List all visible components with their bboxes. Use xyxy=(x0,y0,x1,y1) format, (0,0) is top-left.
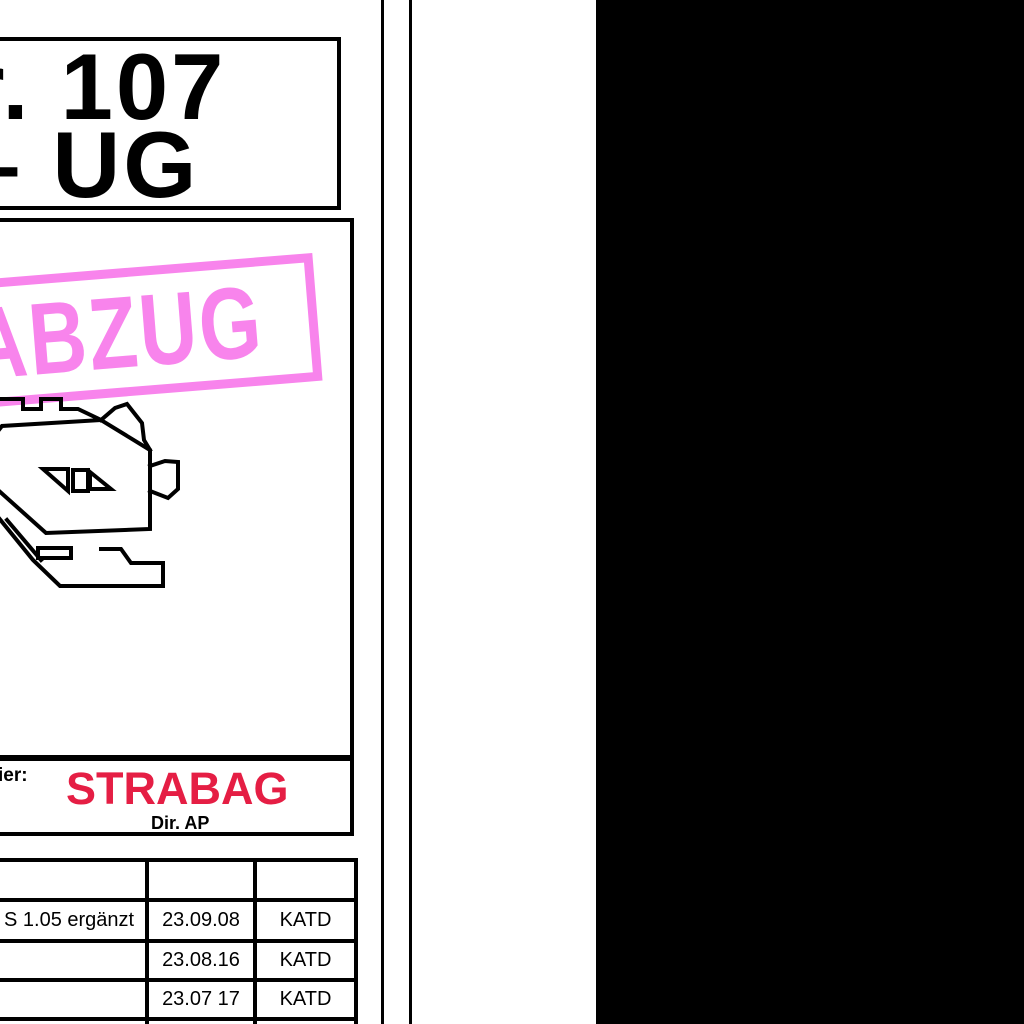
table-cell: 23.07 17 xyxy=(149,982,253,1017)
table-cell: KATD xyxy=(257,982,354,1017)
plan-sheet: r. 107 – UG ABZUG ier: STRABAG Dir. AP S… xyxy=(0,0,1024,1024)
frame-line-outer xyxy=(409,0,412,1024)
table-cell: KATD xyxy=(257,902,354,939)
publisher-box: ier: STRABAG Dir. AP xyxy=(0,757,354,836)
interior-rectangle xyxy=(73,470,88,491)
lower-wing-slot xyxy=(38,548,71,558)
roof-edge-line xyxy=(0,399,101,420)
building-side-tab xyxy=(150,461,178,498)
table-cell: KATD xyxy=(257,943,354,978)
table-cell xyxy=(0,982,145,1017)
black-masked-region xyxy=(596,0,1024,1024)
strabag-logo: STRABAG xyxy=(66,765,289,813)
building-corner-band xyxy=(101,404,150,450)
interior-triangle-right xyxy=(90,472,111,489)
abzug-stamp-text: ABZUG xyxy=(0,271,267,396)
title-box: r. 107 – UG xyxy=(0,37,341,210)
table-cell xyxy=(0,862,145,898)
frame-line-inner xyxy=(381,0,384,1024)
table-cell xyxy=(0,943,145,978)
site-plan-drawing xyxy=(0,388,198,598)
plan-title-line2: – UG xyxy=(0,117,199,213)
interior-triangle-left xyxy=(43,469,68,491)
table-cell xyxy=(149,862,253,898)
building-lower-wing xyxy=(0,517,163,586)
table-cell xyxy=(257,862,354,898)
publisher-left-label: ier: xyxy=(0,765,28,787)
logo-sub-label: Dir. AP xyxy=(151,813,209,834)
revision-table: S 1.05 ergänzt 23.09.08 KATD 23.08.16 KA… xyxy=(0,858,358,1024)
table-cell: 23.08.16 xyxy=(149,943,253,978)
table-cell: S 1.05 ergänzt xyxy=(0,902,145,939)
table-cell: 23.09.08 xyxy=(149,902,253,939)
